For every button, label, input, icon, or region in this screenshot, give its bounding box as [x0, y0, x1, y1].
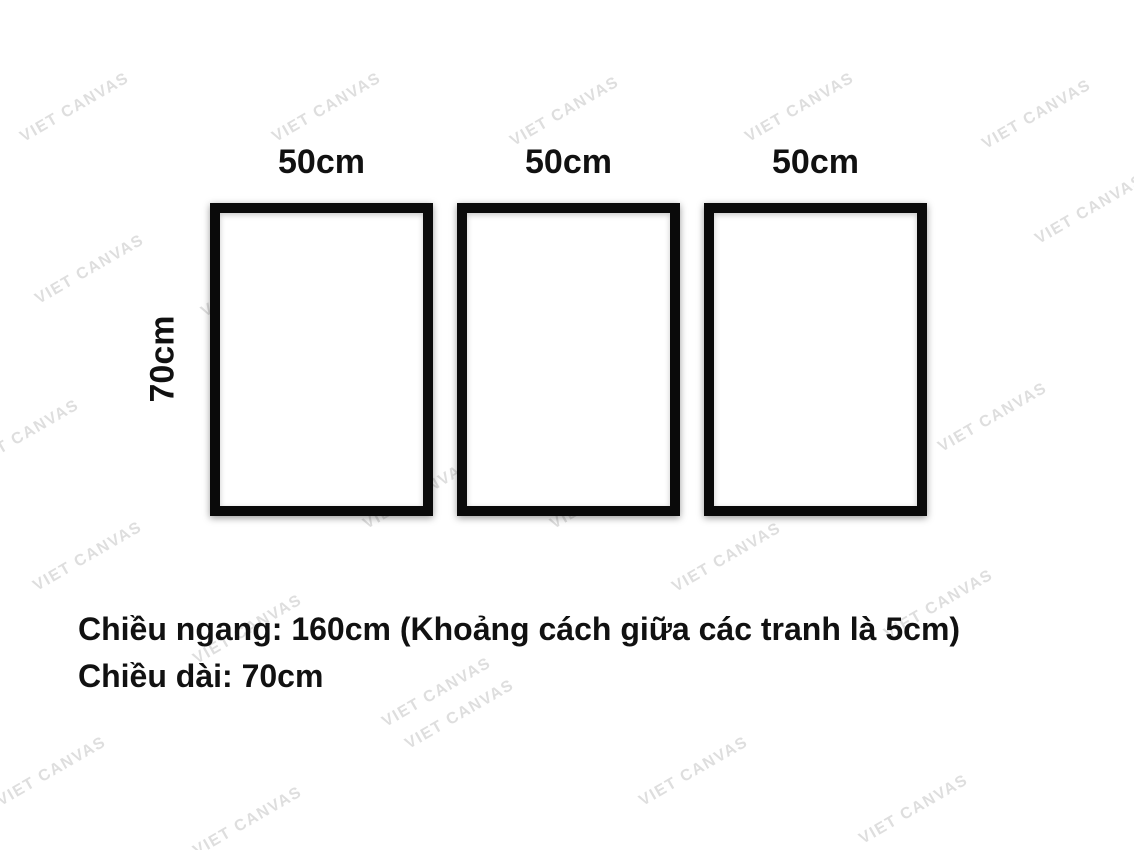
frames-row	[210, 203, 927, 516]
watermark-text: VIET CANVAS	[30, 518, 145, 595]
caption-line-2: Chiều dài: 70cm	[78, 653, 960, 700]
watermark-text: VIET CANVAS	[507, 73, 622, 150]
width-labels-row: 50cm 50cm 50cm	[210, 142, 927, 182]
watermark-text: VIET CANVAS	[1032, 171, 1134, 248]
watermark-text: VIET CANVAS	[0, 396, 83, 473]
frame-width-label: 50cm	[457, 142, 680, 182]
watermark-text: VIET CANVAS	[935, 379, 1050, 456]
watermark-text: VIET CANVAS	[979, 76, 1094, 153]
frame-width-label: 50cm	[704, 142, 927, 182]
watermark-text: VIET CANVAS	[669, 519, 784, 596]
watermark-text: VIET CANVAS	[856, 771, 971, 848]
picture-frame	[210, 203, 433, 516]
watermark-text: VIET CANVAS	[190, 783, 305, 850]
picture-frame	[457, 203, 680, 516]
watermark-text: VIET CANVAS	[0, 733, 110, 810]
frame-width-label: 50cm	[210, 142, 433, 182]
caption-line-1: Chiều ngang: 160cm (Khoảng cách giữa các…	[78, 606, 960, 653]
watermark-text: VIET CANVAS	[32, 231, 147, 308]
frame-height-label: 70cm	[144, 316, 183, 403]
watermark-text: VIET CANVAS	[742, 69, 857, 146]
dimension-diagram: VIET CANVASVIET CANVASVIET CANVASVIET CA…	[0, 0, 1134, 850]
watermark-text: VIET CANVAS	[17, 69, 132, 146]
watermark-text: VIET CANVAS	[269, 69, 384, 146]
watermark-text: VIET CANVAS	[636, 733, 751, 810]
dimensions-caption: Chiều ngang: 160cm (Khoảng cách giữa các…	[78, 606, 960, 700]
picture-frame	[704, 203, 927, 516]
